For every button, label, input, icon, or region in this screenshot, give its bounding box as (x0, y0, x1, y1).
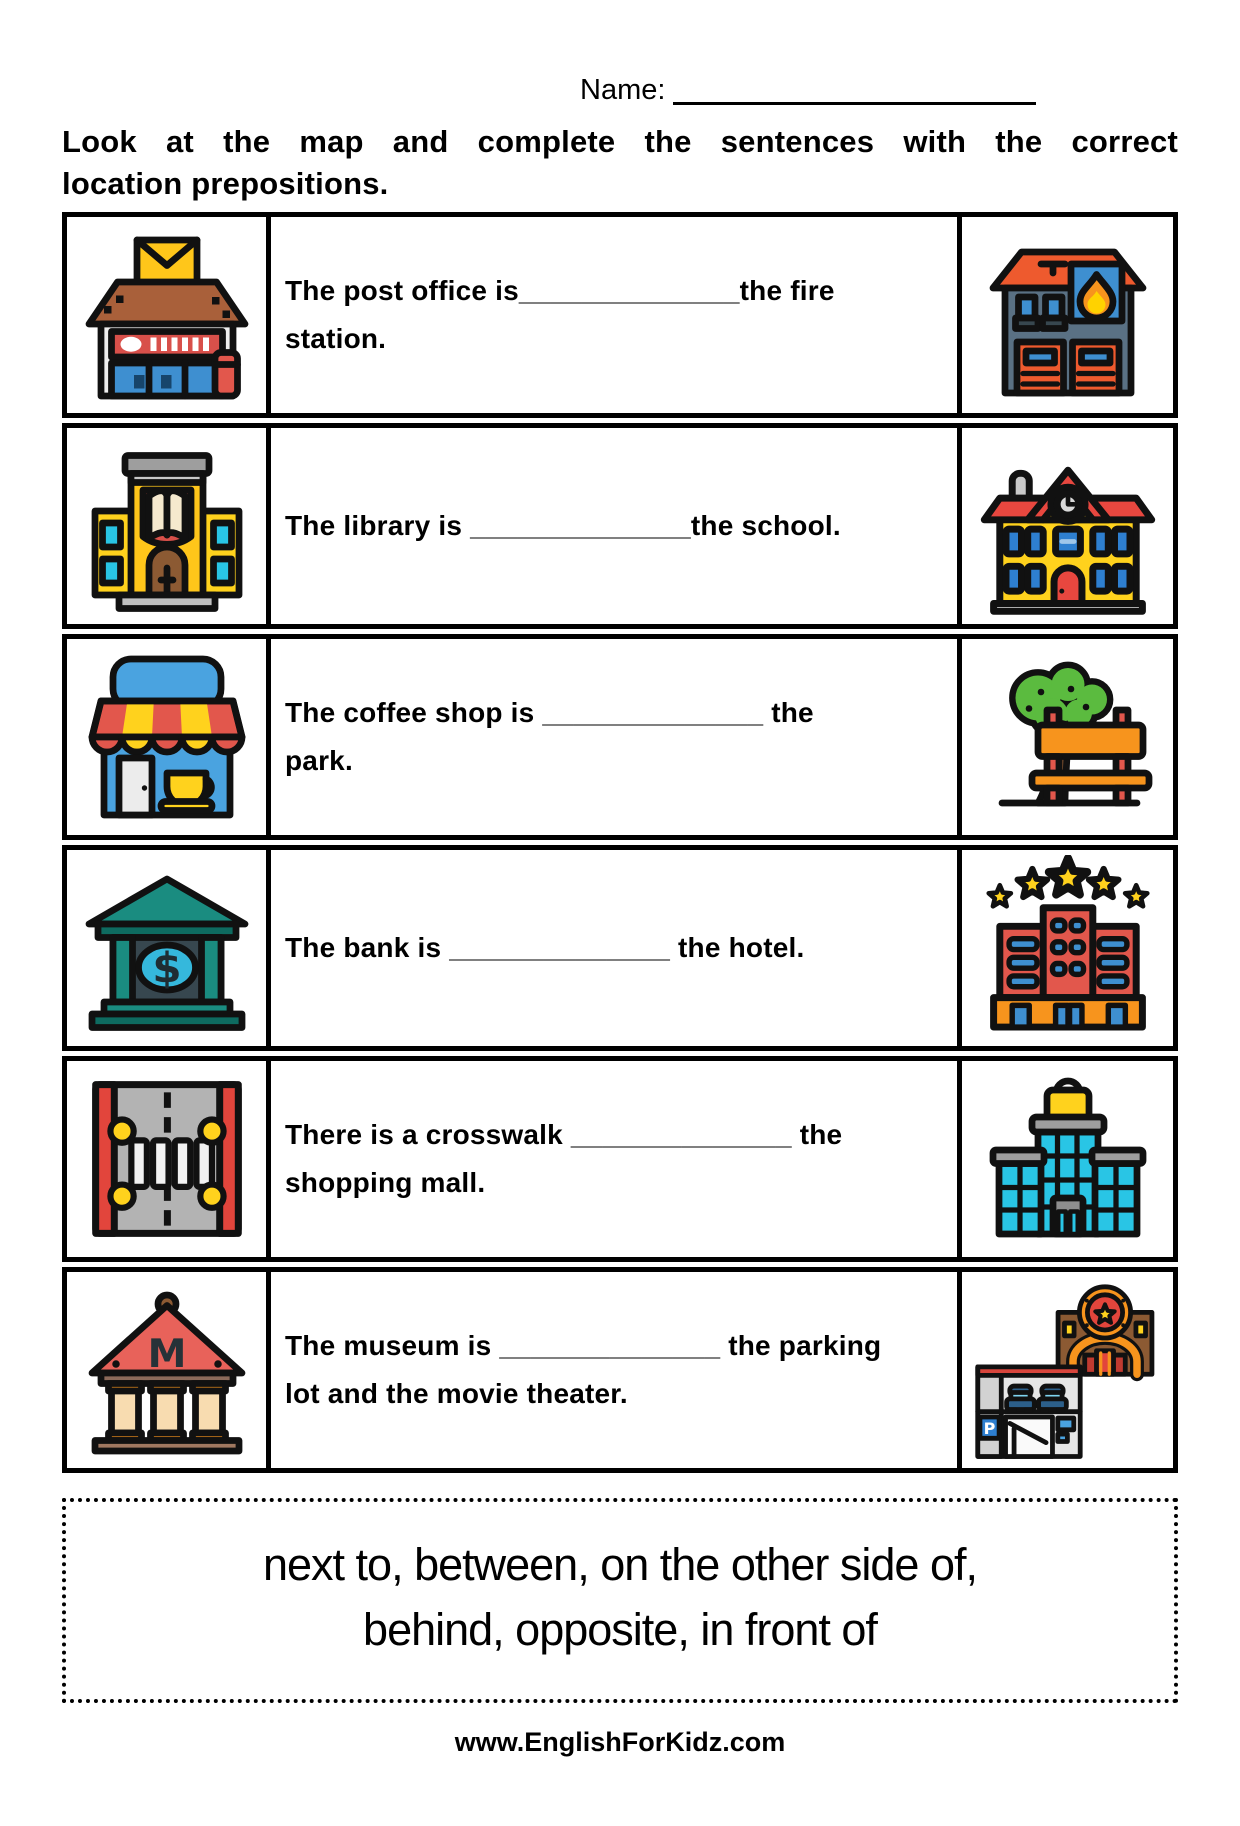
instructions-line-2: location prepositions. (62, 163, 1178, 205)
parking-lot-icon: P (965, 1337, 1093, 1465)
hotel-cell (957, 845, 1178, 1051)
shopping-mall-icon (978, 1069, 1158, 1249)
table-row-museum: M (62, 1267, 1178, 1473)
bank-cell: $ (62, 845, 271, 1051)
table-row-coffee-shop: The coffee shop is ______________ thepar… (62, 634, 1178, 840)
sentence-cell-2: The library is ______________the school. (266, 423, 962, 629)
svg-text:P: P (984, 1419, 996, 1438)
word-bank-line-1: next to, between, on the other side of, (78, 1532, 1162, 1597)
table-row-post-office: The post office is______________the fire… (62, 212, 1178, 418)
sentence-library: The library is ______________the school. (285, 502, 841, 550)
bank-icon: $ (77, 858, 257, 1038)
worksheet-table: The post office is______________the fire… (62, 212, 1178, 1473)
coffee-shop-cell (62, 634, 271, 840)
word-bank: next to, between, on the other side of, … (62, 1498, 1178, 1703)
instructions: Look at the map and complete the sentenc… (62, 121, 1178, 204)
footer-url: www.EnglishForKidz.com (0, 1727, 1240, 1758)
sentence-cell-5: There is a crosswalk ______________ thes… (266, 1056, 962, 1262)
sentence-post-office: The post office is______________the fire… (285, 267, 835, 362)
sentence-cell-3: The coffee shop is ______________ thepar… (266, 634, 962, 840)
museum-cell: M (62, 1267, 271, 1473)
sentence-cell-4: The bank is ______________ the hotel. (266, 845, 962, 1051)
sentence-coffee-shop: The coffee shop is ______________ thepar… (285, 689, 814, 784)
table-row-crosswalk: There is a crosswalk ______________ thes… (62, 1056, 1178, 1262)
svg-text:$: $ (152, 944, 181, 993)
instructions-line-1: Look at the map and complete the sentenc… (62, 121, 1178, 163)
fire-station-icon (978, 225, 1158, 405)
word-bank-line-2: behind, opposite, in front of (78, 1597, 1162, 1662)
name-row: Name: (580, 72, 1036, 105)
sentence-museum: The museum is ______________ the parking… (285, 1322, 881, 1417)
fire-station-cell (957, 212, 1178, 418)
sentence-cell-1: The post office is______________the fire… (266, 212, 962, 418)
school-icon (975, 433, 1161, 619)
park-icon (978, 647, 1158, 827)
name-label: Name: (580, 76, 665, 105)
parking-and-theater-cell: P (957, 1267, 1178, 1473)
school-cell (957, 423, 1178, 629)
library-icon (77, 436, 257, 616)
sentence-bank: The bank is ______________ the hotel. (285, 924, 804, 972)
table-row-library: The library is ______________the school. (62, 423, 1178, 629)
museum-icon: M (77, 1280, 257, 1460)
library-cell (62, 423, 271, 629)
post-office-icon (77, 225, 257, 405)
coffee-shop-icon (77, 647, 257, 827)
name-blank-line (673, 72, 1036, 105)
crosswalk-cell (62, 1056, 271, 1262)
hotel-icon (975, 855, 1161, 1041)
park-cell (957, 634, 1178, 840)
sentence-crosswalk: There is a crosswalk ______________ thes… (285, 1111, 842, 1206)
crosswalk-icon (74, 1066, 260, 1252)
post-office-cell (62, 212, 271, 418)
sentence-cell-6: The museum is ______________ the parking… (266, 1267, 962, 1473)
shopping-mall-cell (957, 1056, 1178, 1262)
table-row-bank: $ The bank is ______________ the hotel. (62, 845, 1178, 1051)
